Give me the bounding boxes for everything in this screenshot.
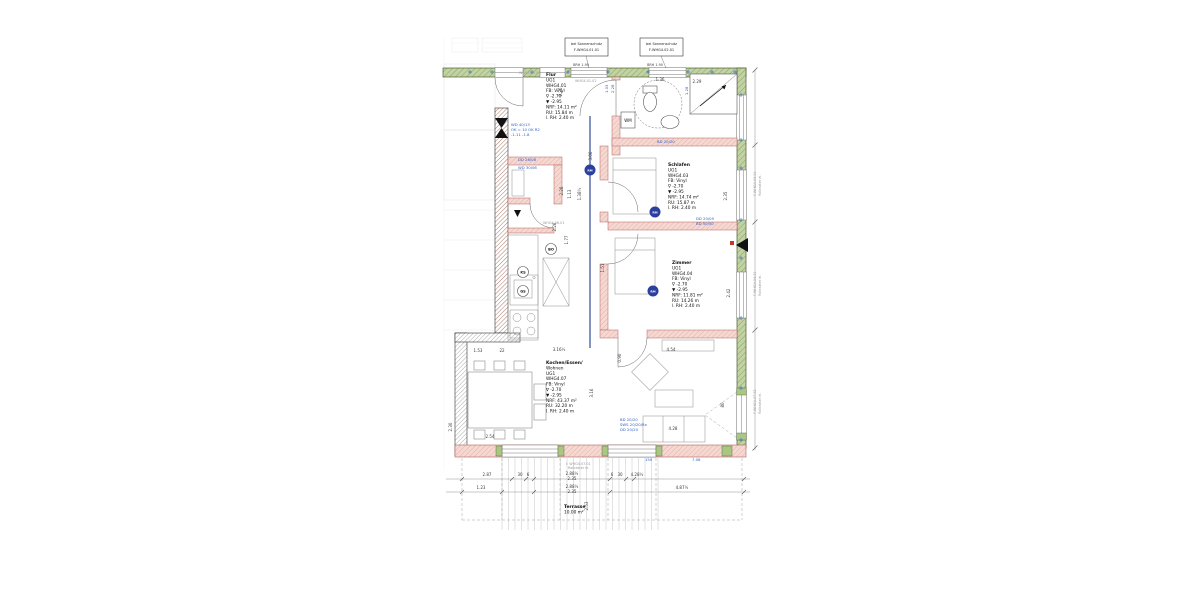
cad-annotation: 150 bbox=[645, 457, 653, 462]
room-label-kochen-essen-wohnen: ∇ -2.70 bbox=[545, 387, 562, 393]
component-id: Rollraster el. bbox=[758, 393, 762, 414]
cad-annotation: 2.28 bbox=[610, 84, 615, 93]
cad-annotation: DD 20/20 bbox=[620, 427, 639, 432]
dimension-label: 80 bbox=[720, 402, 725, 408]
dimension-label: 2.29 bbox=[693, 79, 702, 84]
dimension-label: 4.87½ bbox=[676, 485, 689, 490]
coffee-table bbox=[655, 390, 693, 407]
wc-bowl bbox=[644, 93, 657, 112]
room-label-schlafen: FB: Vinyl bbox=[668, 178, 687, 184]
room-label-kochen-essen-wohnen: WHG4.07 bbox=[546, 376, 567, 382]
brh-label: BRH 1.90 bbox=[647, 63, 663, 67]
sonnenschutz-callouts: bei Sonnenschutz F-WHG4.01.01 bei Sonnen… bbox=[565, 38, 683, 68]
dimension-label: 3.16½ bbox=[553, 347, 566, 352]
dimension-label: 2.30 bbox=[448, 422, 453, 431]
room-label-kochen-essen-wohnen: UG1 bbox=[546, 371, 555, 377]
component-id: Rollraster el. bbox=[758, 275, 762, 296]
svg-text:F-WHG4.02.01: F-WHG4.02.01 bbox=[649, 48, 674, 52]
dining-table bbox=[468, 372, 532, 428]
room-label-flur: ▼ -2.95 bbox=[546, 99, 562, 105]
terrace-boundary bbox=[462, 458, 742, 520]
room-label-zimmer: ∇ -2.70 bbox=[671, 282, 688, 288]
cad-annotation: 7.06 bbox=[692, 457, 701, 462]
room-label-schlafen: ▼ -2.95 bbox=[668, 189, 684, 195]
room-label-schlafen: Schlafen bbox=[668, 162, 690, 168]
room-label-zimmer: ▼ -2.95 bbox=[672, 287, 688, 293]
room-label-zimmer: Zimmer bbox=[672, 260, 692, 266]
component-id: WHG4.01.01 bbox=[519, 71, 540, 75]
dimension-label: 1.53 bbox=[474, 348, 483, 353]
brh-label: BRH 1.90 bbox=[573, 63, 589, 67]
bottom-wall bbox=[455, 445, 746, 457]
dimension-label: 2.87 bbox=[483, 472, 492, 477]
dimension-label: 1.13 bbox=[567, 189, 572, 198]
component-id: F-WHG4.03.01 bbox=[753, 171, 757, 196]
cad-annotation: 1.03 bbox=[604, 84, 609, 93]
svg-text:RM: RM bbox=[587, 168, 592, 172]
living-furniture bbox=[468, 340, 737, 442]
dimension-label: 30 bbox=[617, 472, 623, 477]
wc-cistern bbox=[643, 86, 657, 93]
bed-schlafen bbox=[613, 158, 656, 214]
oven-label: BO bbox=[548, 248, 554, 252]
armchair bbox=[632, 354, 669, 391]
svg-text:RM: RM bbox=[650, 289, 655, 293]
floor-plan-drawing: WM BO KS GS bbox=[0, 0, 1200, 600]
dimension-label: 1.23 bbox=[477, 485, 486, 490]
room-label-kochen-essen-wohnen: NRF: 43.37 m² bbox=[546, 398, 577, 404]
fridge-label: KS bbox=[520, 271, 526, 275]
room-label-kochen-essen-wohnen: Wohnen bbox=[546, 365, 564, 371]
cad-annotation: DD 26/08 bbox=[518, 157, 537, 162]
room-label-schlafen: l. RH: 2.40 m bbox=[668, 205, 696, 211]
sonnenschutz-label-2: bei Sonnenschutz bbox=[646, 42, 677, 46]
bed-zimmer bbox=[615, 238, 655, 294]
dimension-label: 2.35 bbox=[568, 476, 577, 481]
dimension-label: 22 bbox=[499, 348, 505, 353]
dimension-label: 0.90 bbox=[617, 353, 622, 362]
room-label-zimmer: FB: Vinyl bbox=[672, 276, 691, 282]
dimension-label: 6 bbox=[611, 472, 614, 477]
room-label-kochen-essen-wohnen: l. RH: 2.40 m bbox=[546, 409, 574, 415]
room-label-schlafen: NRF: 14.74 m² bbox=[668, 194, 699, 200]
dimension-label: 2.26 bbox=[558, 87, 563, 96]
cad-annotation: BD 50/50 bbox=[696, 221, 714, 226]
room-label-kochen-essen-wohnen: ▼ -2.95 bbox=[546, 392, 562, 398]
cad-annotation: -1.11 -1.8 bbox=[511, 132, 530, 137]
chair bbox=[534, 384, 546, 400]
room-label-flur: l. RH: 2.40 m bbox=[546, 115, 574, 121]
dimension-label: 4.54 bbox=[667, 347, 676, 352]
component-id: WHG4.01.02 bbox=[575, 79, 596, 83]
dimension-label: 2.42 bbox=[726, 288, 731, 297]
dimension-label: 2.53 bbox=[584, 501, 589, 510]
room-label-kochen-essen-wohnen: RU: 32.20 m bbox=[546, 403, 573, 409]
room-label-flur: UG1 bbox=[546, 77, 555, 83]
dimension-label: 4.28½ bbox=[631, 472, 644, 477]
window-swing-dashed bbox=[705, 392, 737, 438]
washbasin bbox=[661, 116, 679, 129]
dimension-label: 2.26 bbox=[559, 186, 564, 195]
room-label-kochen-essen-wohnen: FB: Vinyl bbox=[546, 382, 565, 388]
dimension-label: 2.35 bbox=[723, 191, 728, 200]
dimension-label: 2.35 bbox=[568, 489, 577, 494]
dimension-label: 3.16 bbox=[589, 388, 594, 397]
room-label-schlafen: WHG4.03 bbox=[668, 173, 689, 179]
north-tick bbox=[514, 210, 521, 217]
component-id: Rollraster el. bbox=[568, 466, 589, 470]
cad-annotation: BD 20/20 bbox=[657, 139, 675, 144]
section-line: RM RM RM bbox=[585, 116, 661, 348]
component-id: F-WHG4.04.01 bbox=[753, 271, 757, 296]
room-label-kochen-essen-wohnen: Kochen/Essen/ bbox=[546, 360, 583, 366]
sonnenschutz-label-1: bei Sonnenschutz bbox=[571, 42, 602, 46]
room-label-flur: NRF: 14.11 m² bbox=[546, 104, 577, 110]
dimension-label: 2.54 bbox=[486, 434, 495, 439]
component-id: Rollraster el. bbox=[758, 175, 762, 196]
room-label-schlafen: UG1 bbox=[668, 167, 677, 173]
dimension-label: 6 bbox=[527, 472, 530, 477]
room-label-zimmer: WHG4.04 bbox=[672, 271, 693, 277]
dimension-label: 1.51 bbox=[600, 263, 605, 272]
dimension-label: 3.06 bbox=[588, 151, 593, 160]
room-label-flur: Flur bbox=[546, 72, 557, 78]
room-label-terrasse: 10.00 m² bbox=[564, 509, 584, 515]
room-label-flur: WHG4.01 bbox=[546, 83, 567, 89]
dimension-label: 4.28 bbox=[669, 426, 678, 431]
room-label-zimmer: NRF: 11.81 m² bbox=[672, 292, 703, 298]
chair bbox=[534, 404, 546, 420]
bathroom-fixtures: WM bbox=[621, 74, 737, 129]
room-label-terrasse: Terrasse bbox=[564, 504, 585, 510]
room-label-flur: RU: 15.84 m bbox=[546, 110, 573, 116]
room-label-schlafen: ∇ -2.70 bbox=[667, 184, 684, 190]
dimension-label: 1.77 bbox=[564, 235, 569, 244]
room-label-zimmer: l. RH: 2.40 m bbox=[672, 303, 700, 309]
component-id: WHG4.06.01 bbox=[543, 221, 564, 225]
floorplan-canvas: WM BO KS GS bbox=[0, 0, 1200, 600]
dimension-label: 1.38½ bbox=[577, 187, 582, 200]
washing-machine-label: WM bbox=[624, 118, 632, 123]
room-label-schlafen: RU: 15.87 m bbox=[668, 200, 695, 206]
cad-annotation: 1.28 bbox=[684, 86, 689, 95]
dimension-label: 1.36 bbox=[656, 77, 665, 82]
storage-shelf bbox=[512, 170, 524, 196]
faucet bbox=[533, 276, 535, 278]
svg-text:RM: RM bbox=[652, 210, 657, 214]
room-label-zimmer: UG1 bbox=[672, 265, 681, 271]
component-id: F-WHG4.07.02 bbox=[753, 389, 757, 414]
dimension-label: 30 bbox=[517, 472, 523, 477]
dishwasher-label: GS bbox=[520, 290, 526, 294]
room-label-zimmer: RU: 14.26 m bbox=[672, 298, 699, 304]
cad-annotation: WD 30/06 bbox=[518, 165, 537, 170]
svg-text:F-WHG4.01.01: F-WHG4.01.01 bbox=[574, 48, 599, 52]
